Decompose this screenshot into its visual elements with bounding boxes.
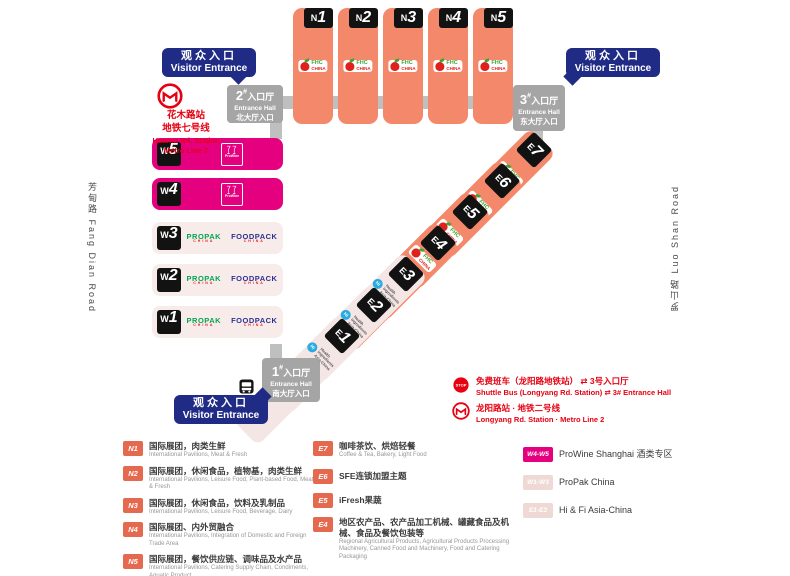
road-label-west: 芳甸路 Fang Dian Road bbox=[86, 182, 99, 313]
hall-w2: W2 PROPAKCHINA FOODPACKCHINA bbox=[152, 264, 283, 296]
hall-n2: N2 FHCCHINA bbox=[338, 8, 378, 124]
wine-glasses-icon bbox=[225, 185, 239, 195]
legend-row: N1 国际展团，肉类生鲜International Pavilions, Mea… bbox=[123, 441, 315, 460]
hall-n3-label: N3 bbox=[394, 8, 423, 28]
fhc-china-logo: FHCCHINA bbox=[478, 60, 507, 72]
metro-icon bbox=[452, 402, 470, 420]
legend-row: E7 咖啡茶饮、烘焙轻餐Coffee & Tea, Bakery, Light … bbox=[313, 441, 521, 460]
legend-row: W4-W5 ProWine Shanghai 酒类专区 bbox=[523, 447, 723, 462]
expo-floor-map: N1 FHCCHINA N2 FHCCHINA N3 FHCCHINA N4 F… bbox=[0, 0, 790, 576]
hall-n3: N3 FHCCHINA bbox=[383, 8, 423, 124]
legend-row: E4 地区农产品、农产品加工机械、罐藏食品及机械、食品及餐饮包装等Regiona… bbox=[313, 517, 521, 562]
foodpack-china-logo: FOODPACKCHINA bbox=[231, 275, 277, 286]
metro-line2-label: 龙阳路站 · 地铁二号线 Longyang Rd. Station · Metr… bbox=[476, 402, 604, 425]
hall-w1: W1 PROPAKCHINA FOODPACKCHINA bbox=[152, 306, 283, 338]
visitor-entrance-bubble-s: 观众入口Visitor Entrance bbox=[174, 395, 268, 424]
shuttle-label: 免费班车（龙阳路地铁站） ⇄ 3号入口厅 Shuttle Bus (Longya… bbox=[476, 375, 671, 398]
fhc-china-logo: FHCCHINA bbox=[433, 60, 462, 72]
hall-e7-label: E7 bbox=[516, 132, 553, 169]
hall-w1-label: W1 bbox=[157, 310, 181, 334]
legend-row: E6 SFE连锁加盟主题 bbox=[313, 469, 521, 484]
foodpack-china-logo: FOODPACKCHINA bbox=[231, 233, 277, 244]
fhc-china-logo: FHCCHINA bbox=[298, 60, 327, 72]
hall-n5-label: N5 bbox=[484, 8, 513, 28]
hall-w2-label: W2 bbox=[157, 268, 181, 292]
legend-row: N3 国际展团，休闲食品，饮料及乳制品International Pavilio… bbox=[123, 498, 315, 517]
propak-china-logo: PROPAKCHINA bbox=[187, 275, 222, 286]
legend-row: N5 国际展团，餐饮供应链、调味品及水产品International Pavil… bbox=[123, 554, 315, 576]
hall-n2-label: N2 bbox=[349, 8, 378, 28]
hall-w4-label: W4 bbox=[157, 182, 181, 206]
hall-w3: W3 PROPAKCHINA FOODPACKCHINA bbox=[152, 222, 283, 254]
legend-column-north: N1 国际展团，肉类生鲜International Pavilions, Mea… bbox=[123, 441, 315, 576]
hall-n5: N5 FHCCHINA bbox=[473, 8, 513, 124]
legend-row: E5 iFresh果蔬 bbox=[313, 493, 521, 508]
visitor-entrance-bubble-nw: 观众入口Visitor Entrance bbox=[162, 48, 256, 77]
propak-china-logo: PROPAKCHINA bbox=[187, 317, 222, 328]
visitor-entrance-bubble-ne: 观众入口Visitor Entrance bbox=[566, 48, 660, 77]
hall-w4: W4 ProWine bbox=[152, 178, 283, 210]
fhc-china-logo: FHCCHINA bbox=[343, 60, 372, 72]
hall-n1: N1 FHCCHINA bbox=[293, 8, 333, 124]
legend-row: E1-E3 Hi & Fi Asia-China bbox=[523, 503, 723, 518]
prowine-logo: ProWine bbox=[221, 183, 243, 206]
apple-icon bbox=[300, 62, 309, 71]
hall-w3-label: W3 bbox=[157, 226, 181, 250]
bus-icon bbox=[239, 379, 254, 394]
corridor-hall2-stub bbox=[270, 121, 282, 139]
legend-column-brands: W4-W5 ProWine Shanghai 酒类专区 W1-W3 ProPak… bbox=[523, 447, 723, 518]
legend-column-east: E7 咖啡茶饮、烘焙轻餐Coffee & Tea, Bakery, Light … bbox=[313, 441, 521, 561]
apple-icon bbox=[345, 62, 354, 71]
legend-row: N2 国际展团，休闲食品，植物基，肉类生鲜International Pavil… bbox=[123, 466, 315, 492]
legend-row: N4 国际展团、内外贸融合International Pavilions, In… bbox=[123, 522, 315, 548]
fhc-china-logo: FHCCHINA bbox=[388, 60, 417, 72]
hall-n4-label: N4 bbox=[439, 8, 468, 28]
metro-icon bbox=[157, 83, 183, 109]
hall-n1-label: N1 bbox=[304, 8, 333, 28]
road-label-east: 罗山路 Luo Shan Road bbox=[668, 185, 681, 311]
hall-n4: N4 FHCCHINA bbox=[428, 8, 468, 124]
shuttle-stop-icon bbox=[453, 377, 469, 393]
apple-icon bbox=[435, 62, 444, 71]
legend-row: W1-W3 ProPak China bbox=[523, 475, 723, 490]
entrance-hall-3-box: 3#入口厅 Entrance Hall 东大厅入口 bbox=[513, 85, 565, 131]
apple-icon bbox=[480, 62, 489, 71]
propak-china-logo: PROPAKCHINA bbox=[187, 233, 222, 244]
apple-icon bbox=[390, 62, 399, 71]
foodpack-china-logo: FOODPACKCHINA bbox=[231, 317, 277, 328]
metro-line7-label: 花木路站 地铁七号线 Huamu Rd. Station Metro Line … bbox=[132, 110, 240, 156]
